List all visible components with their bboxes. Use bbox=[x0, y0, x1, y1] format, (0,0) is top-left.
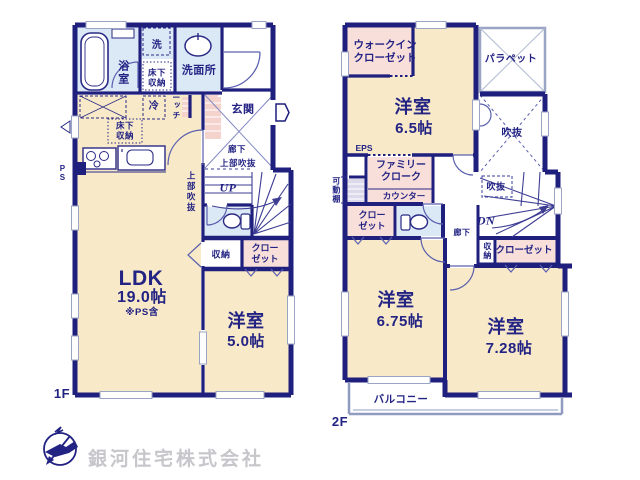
label-bedroom-1f-size: 5.0帖 bbox=[227, 333, 265, 351]
bath-shelf bbox=[112, 29, 134, 38]
label-closet-2f-small: クローゼット bbox=[355, 210, 389, 232]
label-entrance: 玄関 bbox=[232, 103, 255, 116]
compass-icon bbox=[44, 427, 78, 465]
toilet-1f bbox=[224, 214, 241, 228]
label-walk-in-closet: ウォークインクローゼット bbox=[350, 39, 420, 65]
toilet-2f bbox=[411, 215, 428, 229]
label-washroom: 洗面所 bbox=[182, 64, 217, 77]
label-floor2-tag: 2F bbox=[332, 414, 348, 430]
label-storage-1f: 収納 bbox=[211, 250, 230, 261]
bird-mark bbox=[45, 441, 78, 457]
label-closet-2f-wide: クローゼット bbox=[495, 245, 552, 257]
label-void-main: 吹抜 bbox=[502, 128, 523, 140]
label-bedroom-b-size: 6.75帖 bbox=[377, 313, 424, 331]
label-niche: ニッチ bbox=[171, 91, 181, 121]
label-underfloor-storage-kitchen: 床下収納 bbox=[114, 121, 136, 142]
label-bedroom-b: 洋室 bbox=[378, 290, 415, 312]
label-eps: EPS bbox=[355, 143, 372, 153]
label-ldk-note: ※PS含 bbox=[125, 307, 158, 319]
label-void-stair: 吹抜 bbox=[486, 182, 505, 193]
label-movable-shelf: 可動棚 bbox=[331, 177, 341, 204]
label-fridge: 冷 bbox=[149, 101, 160, 113]
label-parapet: パラペット bbox=[485, 54, 538, 66]
label-balcony: バルコニー bbox=[374, 394, 429, 407]
label-upper-void-hallway: 上部吹抜 bbox=[220, 158, 256, 168]
label-hallway-1f: 廊下 bbox=[228, 144, 246, 154]
label-hallway-2f: 廊下 bbox=[454, 228, 471, 238]
label-bath: 浴室 bbox=[115, 60, 128, 86]
label-bedroom-1f: 洋室 bbox=[228, 311, 265, 333]
label-upper-void-ldk: 上部吹抜 bbox=[186, 171, 196, 213]
label-bedroom-c: 洋室 bbox=[488, 317, 525, 339]
label-storage-2f: 収納 bbox=[482, 242, 492, 260]
label-counter: カウンター bbox=[383, 191, 426, 201]
floorplan-canvas: 浴室 洗 床下収納 洗面所 冷 ニッチ 床下収納 玄関 廊下 上部吹抜 UP 上… bbox=[0, 0, 640, 480]
label-laundry: 洗 bbox=[152, 40, 163, 52]
label-bedroom-a-size: 6.5帖 bbox=[395, 120, 433, 138]
floorplan-drawing bbox=[0, 0, 640, 480]
label-underfloor-storage-top: 床下収納 bbox=[146, 68, 168, 89]
company-name: 銀河住宅株式会社 bbox=[88, 448, 264, 471]
label-bedroom-a: 洋室 bbox=[395, 97, 432, 119]
room-ldk bbox=[77, 95, 201, 393]
label-ldk-size: 19.0帖 bbox=[117, 288, 167, 308]
label-stairs-up: UP bbox=[220, 181, 237, 196]
pipe-space-box bbox=[75, 162, 86, 175]
label-family-cloak: ファミリークローク bbox=[374, 160, 428, 184]
label-closet-1f: クローゼット bbox=[248, 243, 282, 265]
label-bedroom-c-size: 7.28帖 bbox=[486, 340, 533, 358]
entrance-arrow bbox=[276, 104, 289, 121]
label-pipe-space: PS bbox=[57, 164, 67, 182]
label-stairs-dn: DN bbox=[477, 214, 495, 229]
label-floor1-tag: 1F bbox=[54, 386, 70, 402]
